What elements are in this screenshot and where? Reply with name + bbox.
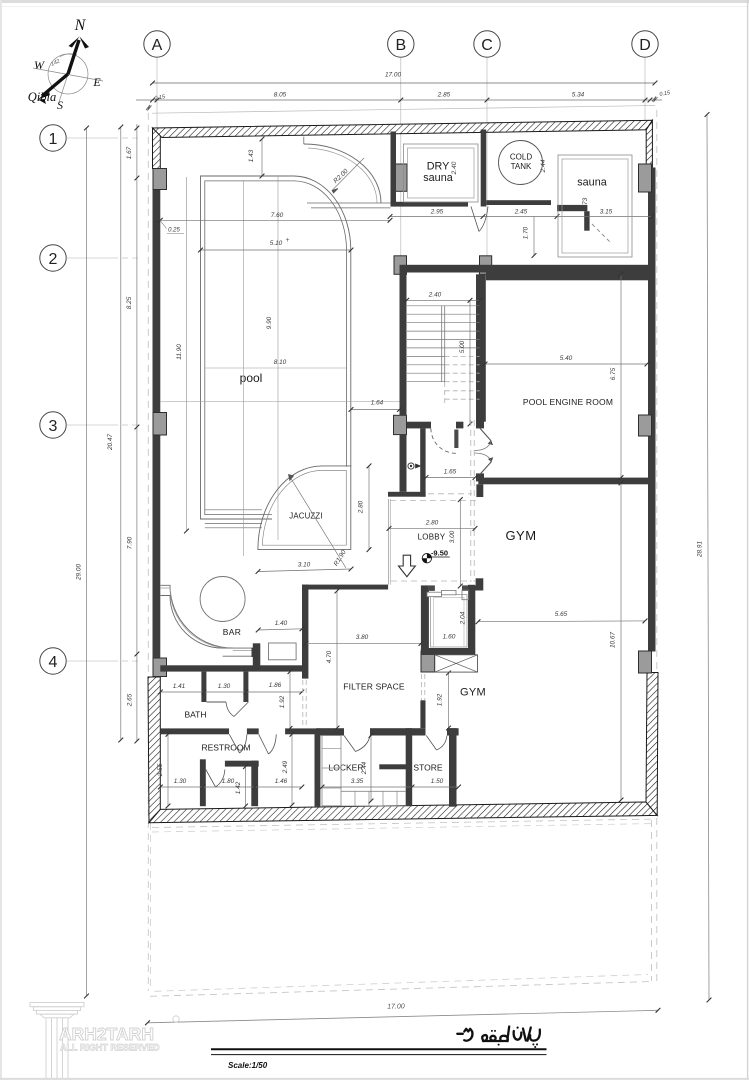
svg-text:1.42: 1.42	[235, 781, 242, 794]
svg-text:Qibla: Qibla	[28, 90, 56, 104]
svg-text:28.91: 28.91	[697, 541, 704, 558]
svg-text:1.60: 1.60	[443, 634, 456, 641]
svg-text:ALL RIGHT RESERVED: ALL RIGHT RESERVED	[60, 1043, 160, 1053]
svg-text:8.05: 8.05	[274, 92, 287, 99]
svg-text:A: A	[152, 37, 163, 54]
svg-text:sauna: sauna	[423, 172, 452, 184]
svg-text:20.47: 20.47	[107, 434, 114, 451]
svg-text:2.55: 2.55	[157, 763, 164, 777]
svg-text:4.70: 4.70	[326, 650, 333, 663]
svg-text:2.45: 2.45	[514, 209, 528, 216]
svg-text:5.40: 5.40	[560, 355, 573, 362]
svg-text:JACUZZI: JACUZZI	[289, 512, 322, 521]
svg-text:1.50: 1.50	[431, 778, 444, 785]
svg-text:29.00: 29.00	[76, 564, 83, 581]
svg-text:7.90: 7.90	[127, 536, 134, 549]
svg-text:3.15: 3.15	[600, 209, 613, 216]
svg-text:LOBBY: LOBBY	[418, 533, 446, 542]
svg-text:2.49: 2.49	[282, 760, 289, 774]
svg-text:5.00: 5.00	[459, 340, 466, 353]
svg-text:2: 2	[49, 251, 58, 268]
svg-text:ARH2TARH: ARH2TARH	[59, 1024, 154, 1044]
svg-text:RESTROOM: RESTROOM	[201, 743, 250, 753]
svg-text:3.35: 3.35	[351, 778, 364, 785]
svg-text:17.00: 17.00	[387, 1003, 405, 1010]
svg-text:1.67: 1.67	[126, 146, 133, 159]
svg-text:+: +	[285, 237, 289, 244]
svg-text:1.64: 1.64	[371, 400, 384, 407]
svg-text:5.10: 5.10	[270, 240, 283, 247]
svg-text:6.75: 6.75	[610, 367, 617, 380]
svg-text:TANK: TANK	[511, 162, 532, 171]
svg-text:5.34: 5.34	[572, 92, 585, 99]
svg-text:1: 1	[49, 131, 58, 148]
svg-text:2.65: 2.65	[127, 693, 134, 707]
svg-text:1.40: 1.40	[275, 620, 288, 627]
svg-text:1.30: 1.30	[218, 683, 231, 690]
svg-text:DRY: DRY	[427, 161, 450, 173]
svg-text:C: C	[481, 37, 493, 54]
svg-text:3.00: 3.00	[449, 530, 456, 543]
svg-text:0.25: 0.25	[168, 228, 180, 234]
svg-text:D: D	[639, 37, 651, 54]
svg-text:3.10: 3.10	[298, 562, 311, 569]
svg-text:8.10: 8.10	[274, 359, 287, 366]
svg-text:E: E	[92, 75, 101, 89]
svg-text:POOL ENGINE ROOM: POOL ENGINE ROOM	[523, 397, 613, 407]
svg-text:COLD: COLD	[510, 153, 532, 162]
svg-text:1.43: 1.43	[248, 149, 255, 162]
svg-text:GYM: GYM	[460, 687, 486, 699]
svg-text:B: B	[395, 37, 406, 54]
svg-text:S: S	[57, 98, 63, 112]
svg-text:8.25: 8.25	[126, 296, 133, 309]
svg-text:BATH: BATH	[184, 710, 206, 720]
svg-text:3: 3	[49, 418, 58, 435]
svg-text:GYM: GYM	[505, 528, 536, 543]
svg-text:2.95: 2.95	[430, 209, 444, 216]
svg-text:2.44: 2.44	[540, 159, 547, 173]
svg-text:1.92: 1.92	[437, 693, 444, 706]
svg-text:2.80: 2.80	[358, 500, 365, 514]
svg-text:BAR: BAR	[223, 627, 241, 637]
svg-text:pool: pool	[240, 371, 263, 385]
svg-text:2.80: 2.80	[425, 520, 439, 527]
svg-text:3.80: 3.80	[356, 634, 369, 641]
svg-text:1.65: 1.65	[444, 469, 457, 476]
svg-text:1.92: 1.92	[279, 695, 286, 708]
svg-text:1.80: 1.80	[222, 778, 235, 785]
svg-text:2.40: 2.40	[451, 161, 458, 175]
svg-text:4.73: 4.73	[582, 197, 589, 210]
svg-text:4: 4	[49, 654, 58, 671]
svg-text:sauna: sauna	[577, 177, 606, 189]
svg-text:2.44: 2.44	[361, 761, 368, 775]
svg-text:1.30: 1.30	[174, 778, 187, 785]
svg-text:17.00: 17.00	[385, 72, 401, 79]
svg-text:STORE: STORE	[413, 763, 442, 773]
svg-text:11.90: 11.90	[176, 344, 183, 360]
svg-text:2.85: 2.85	[437, 92, 451, 99]
svg-text:Scale:1/50: Scale:1/50	[228, 1061, 268, 1070]
svg-text:1.41: 1.41	[173, 683, 186, 690]
svg-text:1.86: 1.86	[269, 682, 282, 689]
svg-text:9.90: 9.90	[266, 316, 273, 329]
svg-text:1.46: 1.46	[275, 778, 288, 785]
svg-text:-9.50: -9.50	[431, 549, 448, 558]
svg-text:2.40: 2.40	[428, 292, 442, 299]
svg-text:FILTER SPACE: FILTER SPACE	[343, 682, 405, 692]
svg-text:1.70: 1.70	[523, 226, 530, 239]
svg-text:5.65: 5.65	[555, 611, 568, 618]
svg-text:10.67: 10.67	[610, 632, 617, 648]
svg-text:LOCKER: LOCKER	[329, 763, 364, 773]
svg-text:2.04: 2.04	[460, 611, 467, 625]
svg-text:N: N	[74, 17, 87, 34]
svg-text:W: W	[34, 58, 45, 72]
svg-text:7.60: 7.60	[271, 212, 284, 219]
